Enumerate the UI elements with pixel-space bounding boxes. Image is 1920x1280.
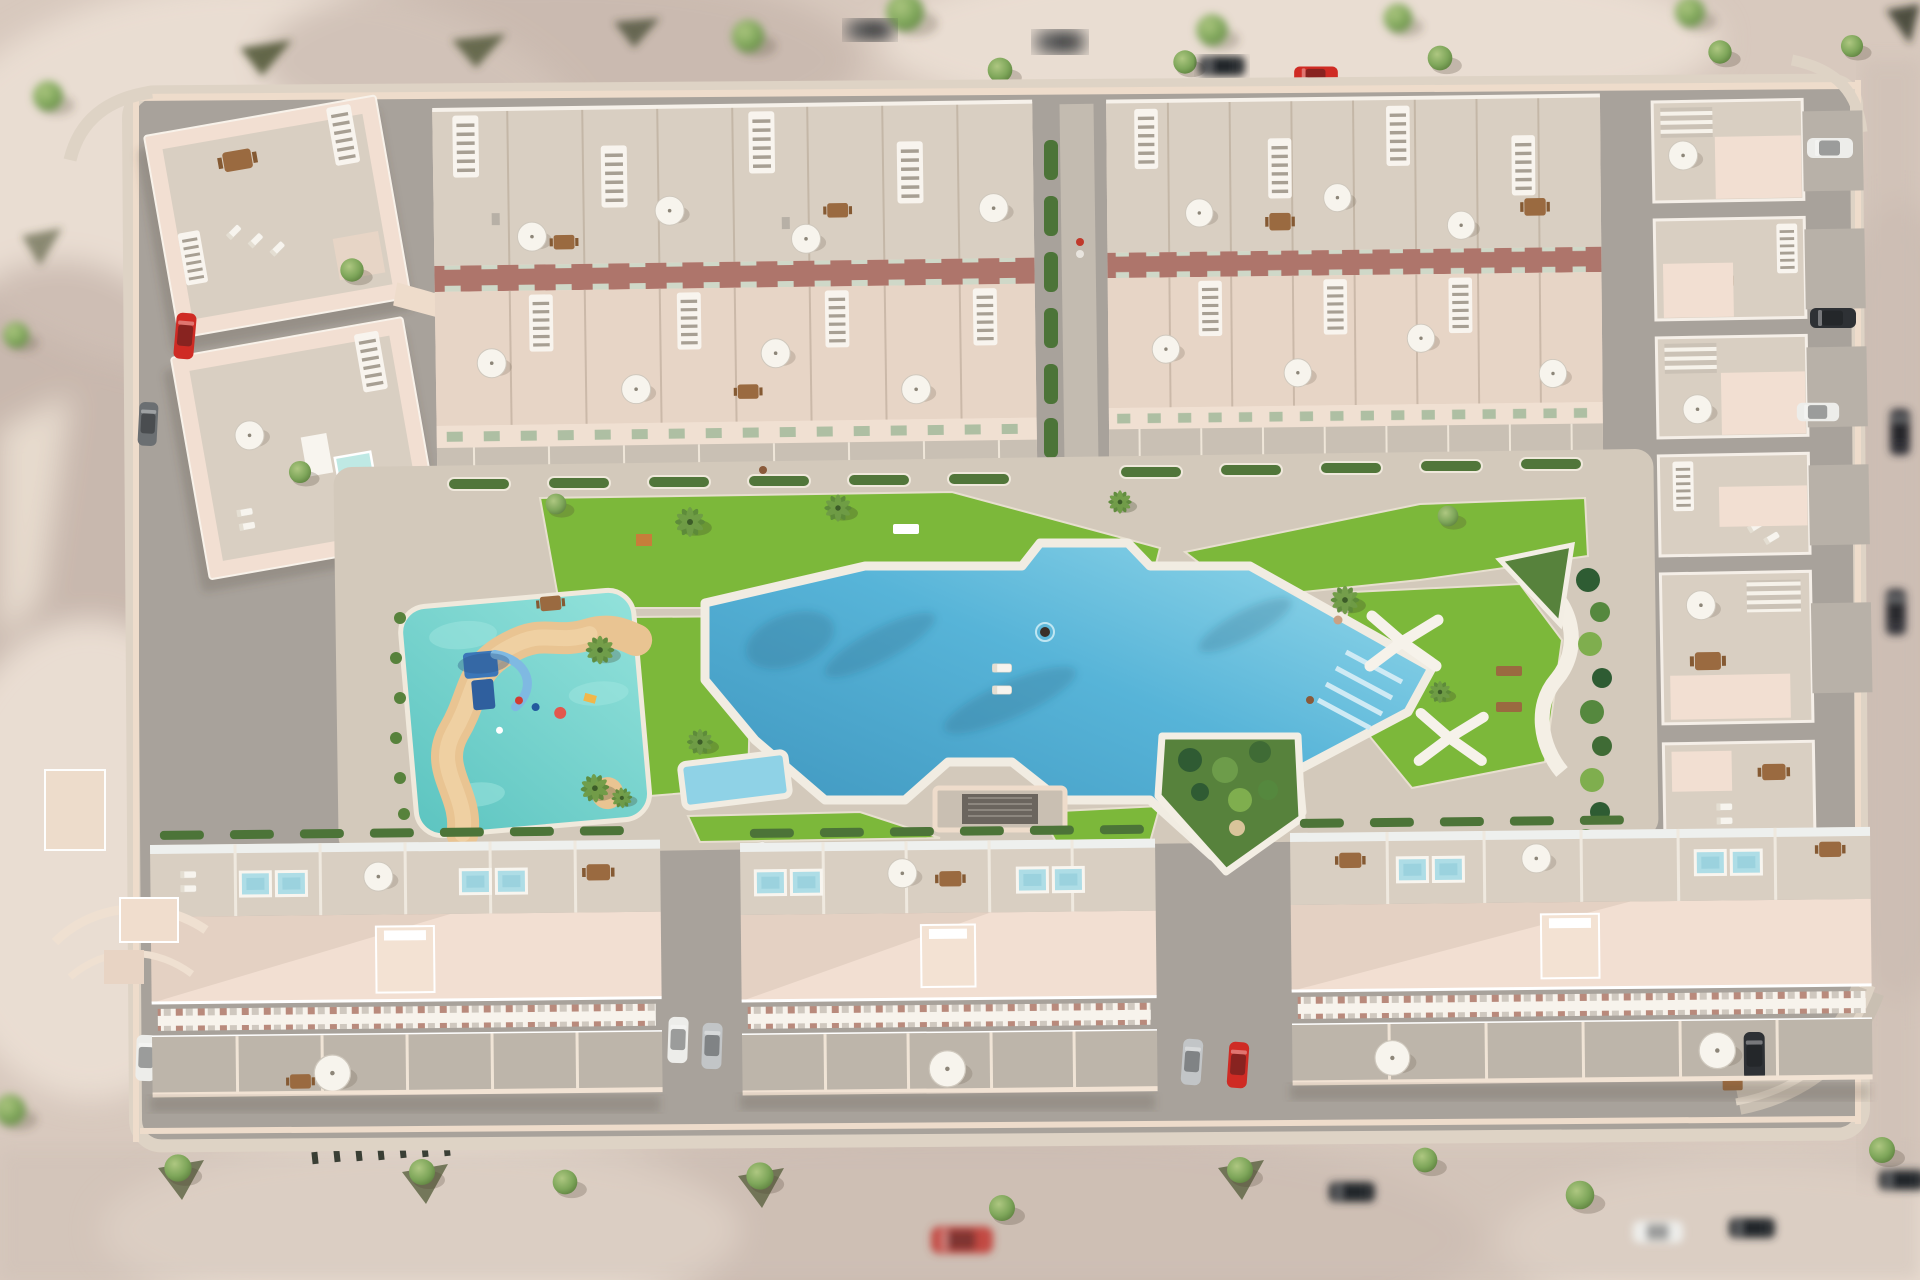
- outdoor-dining-set: [1815, 842, 1846, 858]
- roof-stairs: [1323, 279, 1347, 335]
- parked-car-white: [1807, 138, 1853, 158]
- villa-volume: [1715, 135, 1802, 198]
- swimmer: [1040, 627, 1050, 637]
- outdoor-dining-set: [1758, 764, 1791, 781]
- splash-water-park: [399, 588, 652, 838]
- parked-car-dark: [1886, 589, 1906, 635]
- rooftop-plunge-pool: [1433, 857, 1463, 881]
- parked-car-dark: [1810, 308, 1856, 328]
- parked-car-red: [931, 1227, 993, 1254]
- kids-rect-pool: [680, 752, 791, 809]
- bottom-row-middle: [740, 825, 1158, 1093]
- parked-car-red: [173, 312, 197, 360]
- roof-stairs: [1448, 277, 1472, 333]
- outdoor-dining-set: [734, 384, 763, 399]
- roof-stairs: [973, 288, 998, 345]
- gate-kiosk-2: [104, 950, 144, 984]
- bench: [1496, 666, 1522, 676]
- rooftop-plunge-pool: [460, 869, 490, 893]
- central-park: [333, 449, 1658, 881]
- pergola: [1664, 343, 1717, 374]
- rooftop-plunge-pool: [1017, 868, 1047, 892]
- villa-volume: [1663, 263, 1734, 318]
- villa-unit-3: [1656, 334, 1868, 438]
- villa-unit-2: [1654, 216, 1866, 320]
- stair-tower-glass: [384, 930, 426, 940]
- rooftop-plunge-pool: [496, 869, 526, 893]
- driveway: [1809, 464, 1870, 545]
- rooftop-plunge-pool: [1731, 850, 1761, 874]
- stair-tower-glass: [1549, 918, 1591, 928]
- outdoor-dining-set: [823, 203, 852, 218]
- parked-car-red: [1226, 1041, 1249, 1088]
- ac-unit: [782, 217, 790, 229]
- outdoor-dining-set: [550, 235, 579, 250]
- gate-kiosk: [120, 898, 178, 942]
- villa-volume: [1671, 751, 1732, 792]
- parked-pickup-white: [1633, 1221, 1684, 1243]
- roof-terrace: [163, 114, 393, 320]
- utility-structure: [45, 770, 105, 850]
- rooftop-plunge-pool: [240, 872, 270, 896]
- rooftop-plunge-pool: [1397, 858, 1427, 882]
- roof-stairs: [897, 141, 924, 203]
- roof-stairs: [748, 111, 775, 173]
- townhouse-block-a: [432, 102, 1037, 485]
- outdoor-dining-set: [1520, 198, 1550, 216]
- parked-car-dark: [1744, 1032, 1766, 1081]
- sun-lounger: [180, 871, 196, 878]
- roof-stairs: [1386, 106, 1410, 166]
- parked-car-dark: [847, 20, 893, 40]
- roof-stairs: [1776, 223, 1798, 273]
- roof-stairs: [1268, 138, 1292, 198]
- rooftop-plunge-pool: [1053, 867, 1083, 891]
- pergola: [1660, 107, 1713, 138]
- person: [1306, 696, 1314, 704]
- driveway: [1811, 602, 1873, 693]
- driveway: [1804, 228, 1865, 309]
- parked-car-white: [1797, 403, 1839, 421]
- roof-stairs: [1511, 135, 1535, 195]
- outdoor-dining-set: [582, 864, 615, 881]
- parked-car-silver: [1180, 1038, 1203, 1085]
- villa-volume: [1721, 371, 1806, 434]
- rooftop-plunge-pool: [276, 871, 306, 895]
- parked-car-grey: [137, 402, 158, 447]
- parked-car-dark: [1329, 1182, 1375, 1202]
- person: [1076, 238, 1084, 246]
- person: [1076, 250, 1084, 258]
- outdoor-dining-set: [935, 871, 966, 887]
- sun-lounger: [180, 885, 196, 892]
- roof-stairs: [825, 290, 850, 347]
- sun-lounger: [1716, 803, 1732, 810]
- cast-shadow: [1290, 1084, 1870, 1100]
- alley-path: [1059, 104, 1098, 464]
- render-canvas: [0, 0, 1920, 1280]
- rooftop-plunge-pool: [755, 871, 785, 895]
- in-water-lounger: [992, 686, 1011, 694]
- sunken-stair-feature: [935, 788, 1065, 830]
- roof-stairs: [677, 292, 702, 349]
- site-plan-render: [0, 0, 1920, 1280]
- clerestory-windows: [748, 1003, 1151, 1029]
- parked-car-dark: [1199, 56, 1245, 76]
- rooftop-plunge-pool: [791, 870, 821, 894]
- picnic-towel: [893, 524, 919, 534]
- in-water-lounger: [992, 664, 1011, 672]
- roof-stairs: [1672, 461, 1694, 511]
- bottom-row-right: [1290, 813, 1873, 1095]
- roof-stairs: [1198, 281, 1222, 337]
- west-wall: [133, 92, 139, 1142]
- parked-car-silver: [701, 1023, 723, 1070]
- bottom-street: [0, 1150, 1920, 1280]
- parked-car-dark: [1879, 1170, 1920, 1190]
- outdoor-dining-set: [286, 1074, 315, 1089]
- pergola: [1747, 579, 1802, 612]
- roof-stairs: [452, 115, 479, 177]
- parked-car-dark: [1890, 409, 1910, 455]
- swimmer: [1334, 616, 1343, 625]
- cast-shadow: [740, 1094, 1155, 1110]
- stair-tower-glass: [929, 929, 967, 939]
- parked-car-dark: [1729, 1218, 1775, 1238]
- sun-lounger: [1717, 817, 1733, 824]
- villa-unit-4: [1658, 452, 1870, 556]
- ac-unit: [492, 213, 500, 225]
- parked-car-white: [667, 1017, 689, 1064]
- bottom-row-left: [150, 826, 663, 1095]
- parked-car-dark: [1036, 32, 1084, 53]
- rooftop-plunge-pool: [1695, 850, 1725, 874]
- villa-volume: [1719, 485, 1808, 527]
- outdoor-dining-set: [1265, 213, 1295, 231]
- person: [759, 466, 767, 474]
- townhouse-block-b: [1106, 95, 1603, 465]
- cast-shadow: [150, 1096, 660, 1112]
- outdoor-dining-set: [1335, 853, 1366, 869]
- roof-stairs: [1134, 109, 1158, 169]
- villa-volume: [1670, 674, 1791, 720]
- roof-stairs: [529, 294, 554, 351]
- roof-stairs: [601, 145, 628, 207]
- planter-box: [636, 534, 652, 546]
- outdoor-dining-set: [1690, 652, 1726, 671]
- bench: [1496, 702, 1522, 712]
